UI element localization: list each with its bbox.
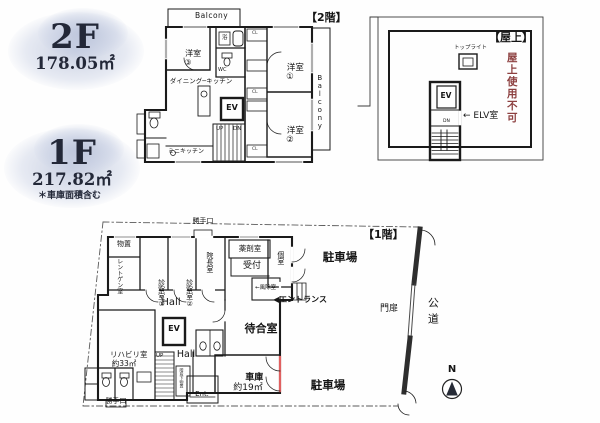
parking-lower-label: 駐車場 <box>311 379 346 392</box>
floor-2f-area: 178.05㎡ <box>35 55 115 73</box>
closet-label: CL <box>252 90 258 95</box>
xray-room-label: レントゲン室 <box>115 258 122 294</box>
wc-2f-label: WC <box>218 68 226 74</box>
windbreak-room-label: ←風除室 <box>255 285 276 291</box>
storage-room-label: 物置 <box>117 241 131 249</box>
rehab-room-label: リハビリ室約33㎡ <box>100 343 147 377</box>
compass-icon <box>443 380 462 399</box>
hall-lower-label: Hall <box>177 350 195 361</box>
stairs-down-2f-label: DN <box>233 126 241 132</box>
floor-1f-area: 217.82㎡ <box>32 171 112 189</box>
floor-1f-heading: 1F <box>47 134 97 172</box>
dining-kitchen-label: ダイニング─キッチン <box>170 78 232 85</box>
reception-label: 受付 <box>243 261 261 271</box>
mini-kitchen-label: ミニキッチン <box>168 149 204 156</box>
stairs-up-2f-label: UP <box>216 126 223 132</box>
parking-upper-label: 駐車場 <box>323 251 358 264</box>
room-western-2: 洋室② <box>276 117 304 155</box>
elevator-roof-label: EV <box>441 92 452 100</box>
gate-label: 門扉 <box>380 304 398 314</box>
bath-2f-label: 浴 <box>222 35 228 41</box>
skylight-label: トップライト <box>454 45 487 51</box>
closet-label: CL <box>252 31 258 36</box>
compass-north-label: N <box>448 364 456 375</box>
closet-label: CL <box>252 147 258 152</box>
back-door-bottom-label: 勝手口 <box>106 398 127 406</box>
pharmacy-label: 薬剤室 <box>239 245 262 253</box>
hall-upper-label: Hall <box>161 297 180 308</box>
plan-roof-title: 【屋上】 <box>489 32 533 44</box>
garage-label: 車庫約19㎡ <box>233 363 264 403</box>
floor-2f-heading: 2F <box>50 18 100 56</box>
stairs-down-roof-label: DN <box>443 119 450 124</box>
balcony-right-label: Balcony <box>315 74 323 130</box>
elevator-1f-label: EV <box>168 325 180 334</box>
director-room-label: 院長室 <box>205 252 213 273</box>
balcony-top-label: Balcony <box>195 12 228 20</box>
understair-storage-label: 階段下物置 <box>179 368 183 388</box>
floorplan-page: 2F 178.05㎡ 1F 217.82㎡ ＊車庫面積含む Balcony 【2… <box>0 0 600 423</box>
garage-area-note: ＊車庫面積含む <box>38 191 101 201</box>
elv-room-label: ← ELV室 <box>463 111 498 121</box>
roof-warning-label: 屋上使用不可 <box>505 52 517 124</box>
entrance-label: ◀エントランス <box>273 296 327 305</box>
plan-2f-title: 【2階】 <box>306 12 347 24</box>
elevator-2f-label: EV <box>226 104 238 113</box>
waiting-room-label: 待合室 <box>245 323 278 335</box>
room-western-3: 洋室③ <box>175 41 201 77</box>
public-road-label: 公道 <box>426 297 438 329</box>
stairs-up-1f-label: UP <box>156 353 163 359</box>
plan-1f-title: 【1階】 <box>363 229 404 241</box>
private-room-label: 個室 <box>276 251 284 265</box>
ent-porch-label: Ent. <box>195 391 209 399</box>
back-door-top-label: 勝手口 <box>193 218 214 226</box>
room-western-1: 洋室① <box>276 54 304 92</box>
